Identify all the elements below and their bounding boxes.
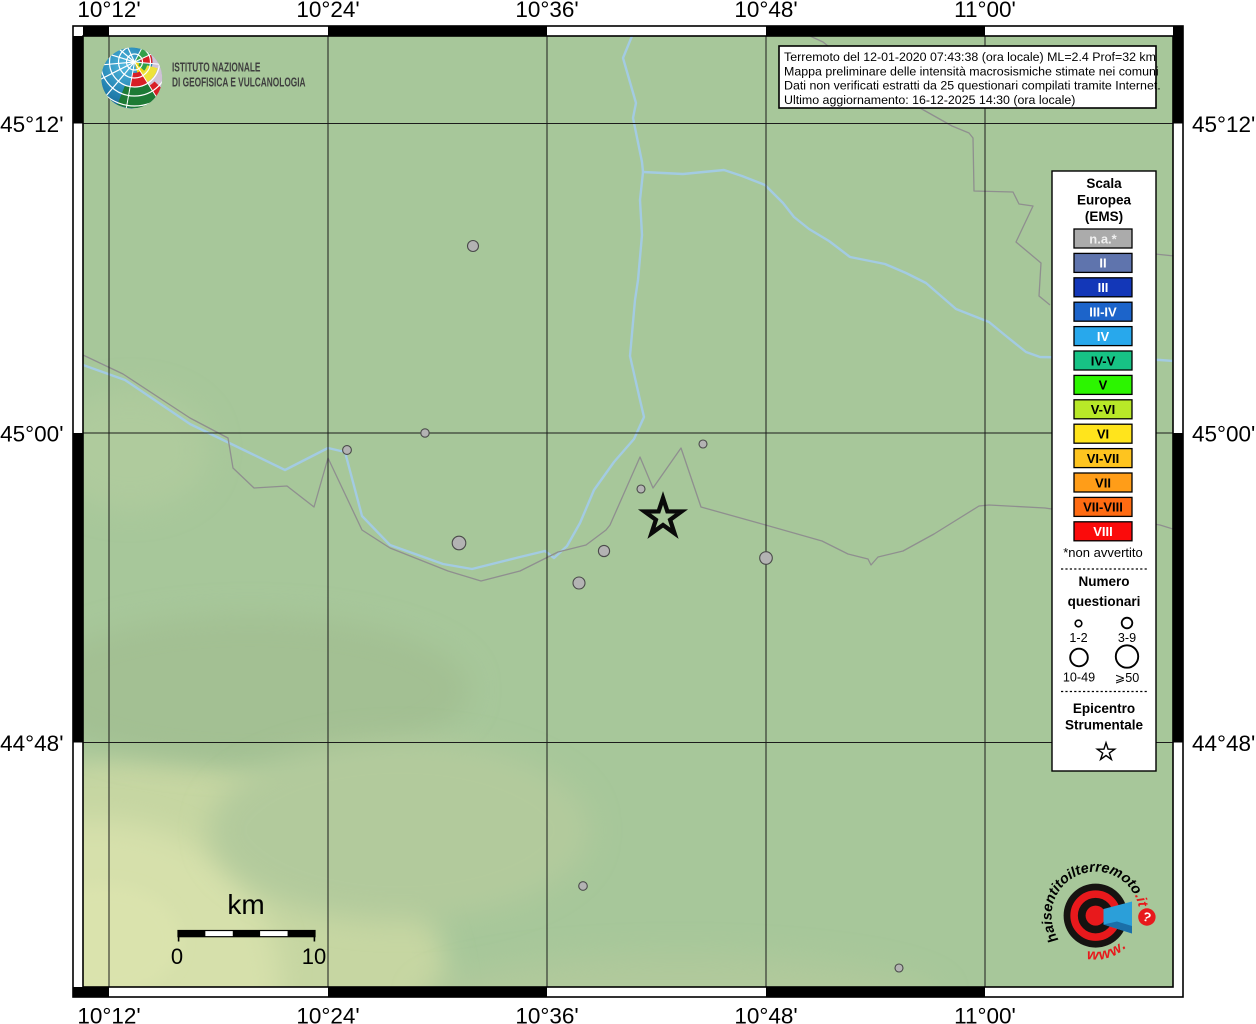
svg-text:Strumentale: Strumentale — [1065, 718, 1144, 733]
svg-text:45°00': 45°00' — [0, 421, 63, 446]
svg-text:Europea: Europea — [1077, 193, 1132, 208]
svg-text:III-IV: III-IV — [1089, 305, 1117, 320]
svg-text:Numero: Numero — [1078, 574, 1129, 589]
svg-text:10°12': 10°12' — [77, 0, 140, 22]
svg-text:V: V — [1099, 378, 1108, 393]
svg-text:45°12': 45°12' — [0, 112, 63, 137]
svg-text:n.a.*: n.a.* — [1089, 231, 1117, 246]
svg-text:II: II — [1099, 256, 1106, 271]
svg-text:10°36': 10°36' — [515, 0, 578, 22]
svg-text:VII: VII — [1095, 475, 1111, 490]
svg-text:3-9: 3-9 — [1118, 631, 1136, 645]
svg-text:10°24': 10°24' — [296, 1004, 359, 1024]
svg-text:10: 10 — [302, 944, 326, 969]
svg-text:km: km — [227, 889, 264, 920]
svg-text:10°24': 10°24' — [296, 0, 359, 22]
svg-text:⩾50: ⩾50 — [1115, 671, 1140, 685]
svg-text:44°48': 44°48' — [1192, 731, 1255, 756]
svg-text:(EMS): (EMS) — [1085, 209, 1123, 224]
svg-text:Scala: Scala — [1086, 176, 1122, 191]
svg-text:Terremoto del 12-01-2020 07:43: Terremoto del 12-01-2020 07:43:38 (ora l… — [784, 50, 1156, 64]
svg-text:45°00': 45°00' — [1192, 421, 1255, 446]
svg-text:Ultimo aggiornamento: 16-12-20: Ultimo aggiornamento: 16-12-2025 14:30 (… — [784, 93, 1075, 107]
svg-text:11°00': 11°00' — [954, 1004, 1016, 1024]
svg-text:44°48': 44°48' — [0, 731, 63, 756]
svg-text:DI GEOFISICA E VULCANOLOGIA: DI GEOFISICA E VULCANOLOGIA — [172, 76, 306, 90]
svg-text:VII-VIII: VII-VIII — [1083, 500, 1123, 515]
svg-text:questionari: questionari — [1068, 594, 1141, 609]
svg-text:VI-VII: VI-VII — [1087, 451, 1120, 466]
svg-text:Epicentro: Epicentro — [1073, 701, 1135, 716]
svg-text:10-49: 10-49 — [1063, 671, 1095, 685]
svg-text:10°12': 10°12' — [77, 1004, 140, 1024]
svg-text:VIII: VIII — [1093, 524, 1113, 539]
svg-text:IV-V: IV-V — [1091, 353, 1116, 368]
svg-text:45°12': 45°12' — [1192, 112, 1255, 137]
svg-text:10°48': 10°48' — [734, 0, 797, 22]
svg-text:V-VI: V-VI — [1091, 402, 1116, 417]
svg-text:*non avvertito: *non avvertito — [1063, 545, 1143, 560]
svg-text:ISTITUTO NAZIONALE: ISTITUTO NAZIONALE — [172, 61, 260, 75]
svg-text:1-2: 1-2 — [1069, 631, 1087, 645]
svg-text:VI: VI — [1097, 427, 1109, 442]
svg-text:11°00': 11°00' — [954, 0, 1016, 22]
svg-text:Dati non verificati estratti d: Dati non verificati estratti da 25 quest… — [784, 79, 1161, 93]
svg-text:III: III — [1098, 280, 1109, 295]
svg-text:0: 0 — [171, 944, 183, 969]
svg-text:Mappa preliminare delle intens: Mappa preliminare delle intensità macros… — [784, 64, 1159, 78]
svg-text:10°36': 10°36' — [515, 1004, 578, 1024]
svg-text:IV: IV — [1097, 329, 1110, 344]
svg-text:10°48': 10°48' — [734, 1004, 797, 1024]
